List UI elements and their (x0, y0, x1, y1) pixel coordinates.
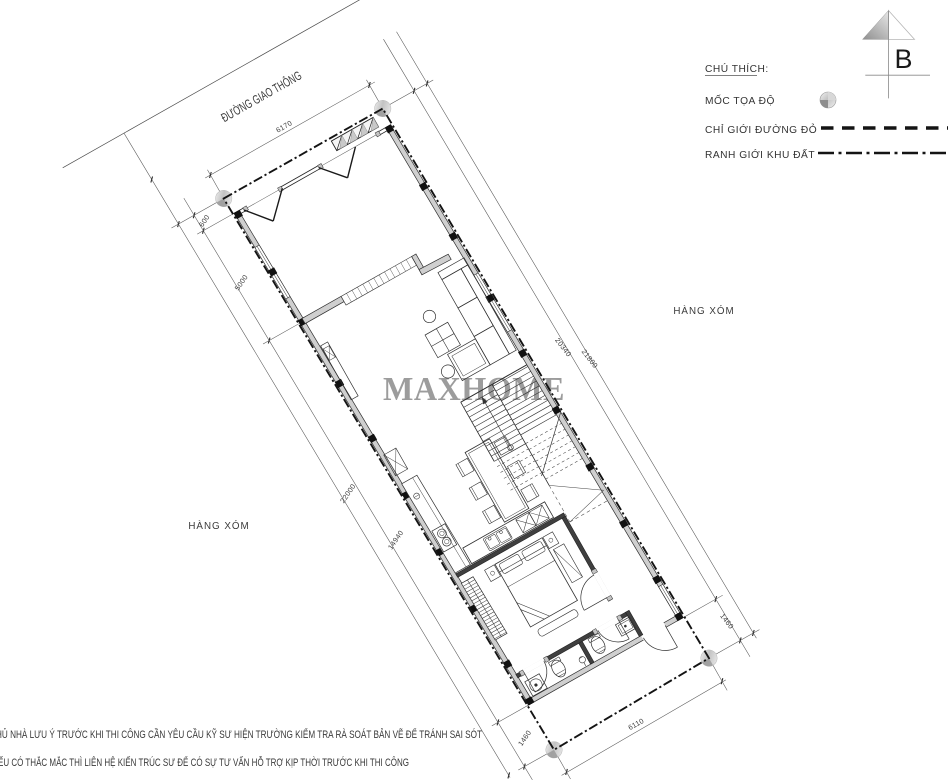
svg-text:MỐC TỌA ĐỘ: MỐC TỌA ĐỘ (705, 93, 775, 107)
svg-text:HÀNG XÓM: HÀNG XÓM (188, 521, 249, 532)
svg-text:CHÚ THÍCH:: CHÚ THÍCH: (705, 62, 769, 75)
svg-text:HỦ NHÀ LƯU Ý TRƯỚC KHI THI CÔN: HỦ NHÀ LƯU Ý TRƯỚC KHI THI CÔNG CẦN YÊU … (0, 728, 482, 741)
svg-text:ẾU CÓ THẮC MẮC THÌ LIÊN HỆ KIẾ: ẾU CÓ THẮC MẮC THÌ LIÊN HỆ KIẾN TRÚC SƯ … (0, 756, 409, 769)
svg-text:HÀNG XÓM: HÀNG XÓM (673, 306, 734, 317)
svg-text:CHỈ GIỚI ĐƯỜNG ĐỎ: CHỈ GIỚI ĐƯỜNG ĐỎ (705, 123, 817, 136)
svg-text:RANH GIỚI KHU ĐẤT: RANH GIỚI KHU ĐẤT (705, 148, 815, 161)
svg-text:B: B (894, 44, 912, 74)
